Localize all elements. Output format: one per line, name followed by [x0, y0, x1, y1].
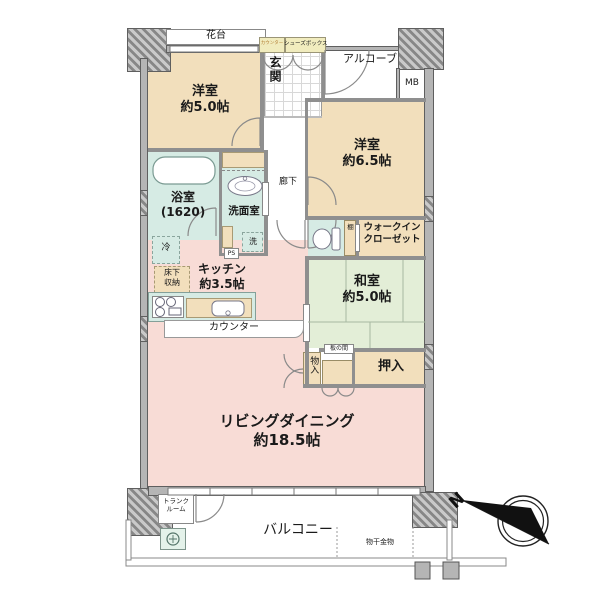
label-monoire: 物入: [307, 356, 318, 374]
itanoma-floor: [322, 360, 353, 385]
label-japanese: 和室 約5.0帖: [327, 274, 407, 307]
pillar-bottom-right: [412, 492, 458, 528]
label-mb: MB: [400, 78, 424, 89]
balcony-rail: [126, 558, 506, 566]
label-trunk: トランク ルーム: [159, 497, 193, 513]
balcony-block-1: [415, 562, 430, 579]
label-bath-name: 浴室: [153, 190, 213, 205]
label-bath-size: (1620): [153, 205, 213, 220]
label-western2: 洋室 約6.5帖: [327, 138, 407, 171]
wall-western2-north: [305, 98, 426, 102]
label-shoebox: シューズボックス: [284, 41, 327, 48]
label-trunk-line2: ルーム: [159, 505, 193, 513]
label-japanese-size: 約5.0帖: [327, 290, 407, 306]
label-western1: 洋室 約5.0帖: [165, 84, 245, 117]
wall-top-alcove: [322, 46, 402, 51]
label-counter: カウンター: [189, 322, 279, 335]
washroom-shelf: [222, 152, 265, 168]
washroom-folding-door: [222, 170, 265, 171]
wall-top-left: [166, 45, 264, 53]
label-ps: PS: [224, 250, 239, 258]
label-western1-name: 洋室: [165, 84, 245, 100]
wall-genkan-west: [260, 46, 264, 150]
label-alcove: アルコーブ: [334, 52, 406, 66]
wall-toilet-north: [305, 216, 426, 220]
label-hanadai: 花台: [166, 30, 266, 43]
linen-cabinet: [222, 226, 233, 248]
wall-left: [140, 58, 148, 492]
label-living-size: 約18.5帖: [207, 431, 367, 450]
label-japanese-name: 和室: [327, 274, 407, 290]
label-balcony: バルコニー: [250, 522, 346, 540]
wall-oshiire-divider: [352, 352, 355, 384]
wall-bath-north: [148, 148, 264, 152]
label-kitchen-name: キッチン: [186, 262, 258, 277]
label-trunk-line1: トランク: [159, 497, 193, 505]
label-hallway: 廊下: [276, 177, 300, 188]
label-genkan: 玄関: [267, 56, 282, 84]
label-oshiire: 押入: [365, 359, 417, 375]
label-living: リビングダイニング 約18.5帖: [207, 412, 367, 450]
label-wic-line2: クローゼット: [360, 234, 424, 246]
wall-japanese-north: [305, 256, 426, 260]
floorplan: N 花台 カウンター シューズボックス アルコーブ MB 玄関 廊下 洋室 約5…: [0, 0, 600, 600]
wall-bath-wash: [219, 150, 222, 256]
compass-icon: N: [445, 489, 549, 546]
wall-hatch-left-1: [140, 190, 148, 216]
wall-hatch-left-2: [140, 316, 148, 342]
wall-corridor-east: [305, 98, 308, 220]
label-underfloor-line2: 収納: [156, 278, 188, 288]
label-itanoma: 板の間: [324, 344, 354, 354]
genkan-step-line: [264, 116, 322, 118]
label-western2-size: 約6.5帖: [327, 154, 407, 170]
label-washroom: 洗面室: [221, 205, 267, 218]
label-western2-name: 洋室: [327, 138, 407, 154]
wall-right: [424, 68, 434, 492]
slop-sink-box: [160, 528, 186, 550]
label-monohoshi: 物干金物: [360, 538, 400, 547]
label-wic: ウォークイン クローゼット: [360, 222, 424, 246]
japanese-sliding-door: [303, 304, 310, 342]
label-fridge: 冷: [158, 243, 174, 254]
label-shoebox-counter: カウンター: [260, 40, 283, 46]
label-kitchen: キッチン 約3.5帖: [186, 262, 258, 292]
wall-japanese-west-upper: [305, 258, 309, 304]
wall-japanese-south: [303, 384, 426, 388]
label-bath: 浴室 (1620): [153, 190, 213, 220]
stove-icon: [152, 296, 184, 318]
room-toilet: [308, 220, 344, 256]
label-kitchen-size: 約3.5帖: [186, 277, 258, 292]
label-laundry: 洗: [246, 237, 260, 247]
label-wic-line1: ウォークイン: [360, 222, 424, 234]
pillar-top-left: [127, 28, 171, 72]
balcony-block-2: [443, 562, 459, 579]
label-living-name: リビングダイニング: [207, 412, 367, 431]
label-tana: 棚: [345, 223, 356, 231]
label-underfloor-line1: 床下: [156, 268, 188, 278]
wall-genkan-east: [322, 46, 325, 102]
label-western1-size: 約5.0帖: [165, 100, 245, 116]
label-underfloor: 床下 収納: [156, 268, 188, 288]
kitchen-worktop: [186, 298, 252, 318]
